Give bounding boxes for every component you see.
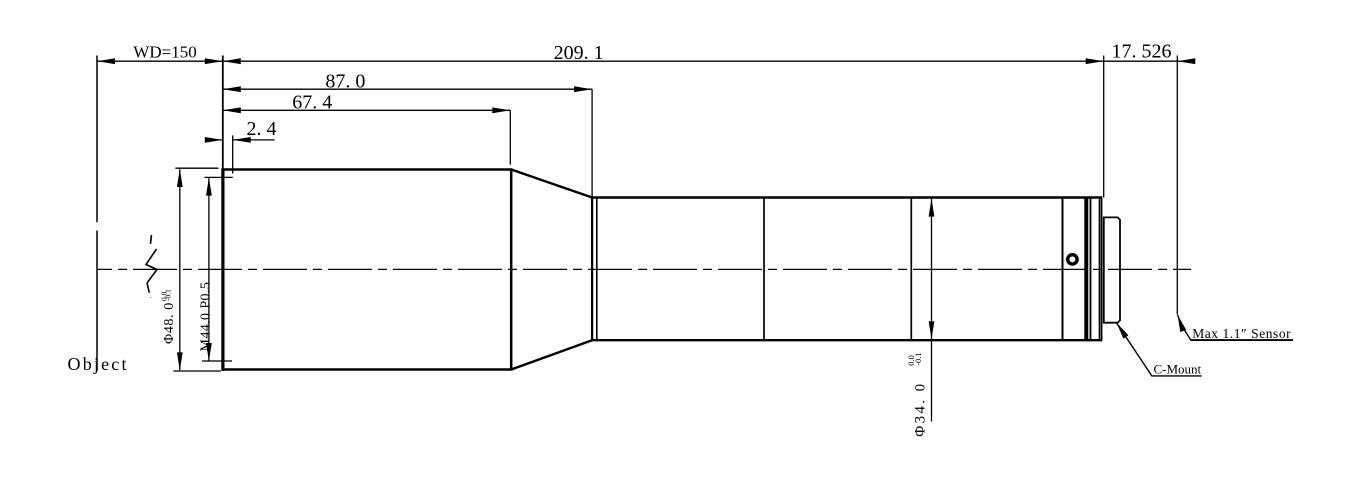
svg-text:Max 1.1″ Sensor: Max 1.1″ Sensor	[1192, 326, 1291, 341]
svg-text:Φ34. 0: Φ34. 0	[913, 381, 929, 436]
svg-text:209. 1: 209. 1	[554, 42, 604, 64]
svg-text:87. 0: 87. 0	[325, 71, 365, 93]
svg-text:WD=150: WD=150	[133, 43, 196, 62]
svg-text:2. 4: 2. 4	[247, 118, 277, 140]
svg-text:-0.1: -0.1	[913, 352, 923, 365]
svg-text:M44.0 P0.5: M44.0 P0.5	[199, 282, 214, 352]
svg-text:Φ48. 0: Φ48. 0	[162, 302, 177, 344]
svg-text:-0.1: -0.1	[163, 289, 172, 301]
svg-text:Object: Object	[68, 354, 129, 374]
svg-text:17. 526: 17. 526	[1112, 40, 1172, 62]
svg-text:67. 4: 67. 4	[292, 92, 332, 114]
svg-text:C-Mount: C-Mount	[1154, 361, 1202, 376]
